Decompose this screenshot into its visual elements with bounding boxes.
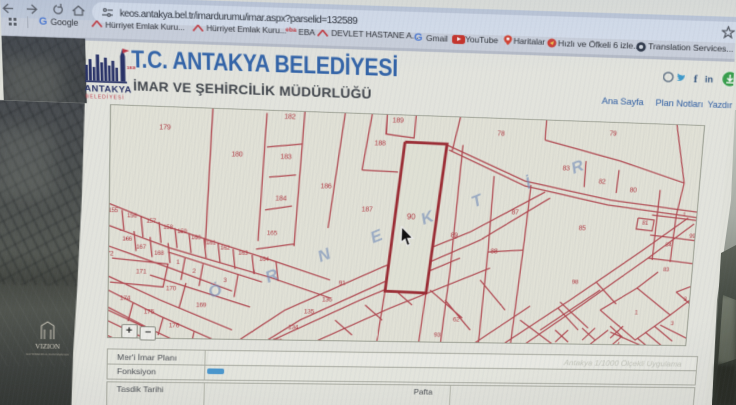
svg-text:in: in [705,74,714,84]
svg-text:ANTAKYA: ANTAKYA [84,83,132,94]
svg-text:f: f [694,73,699,85]
